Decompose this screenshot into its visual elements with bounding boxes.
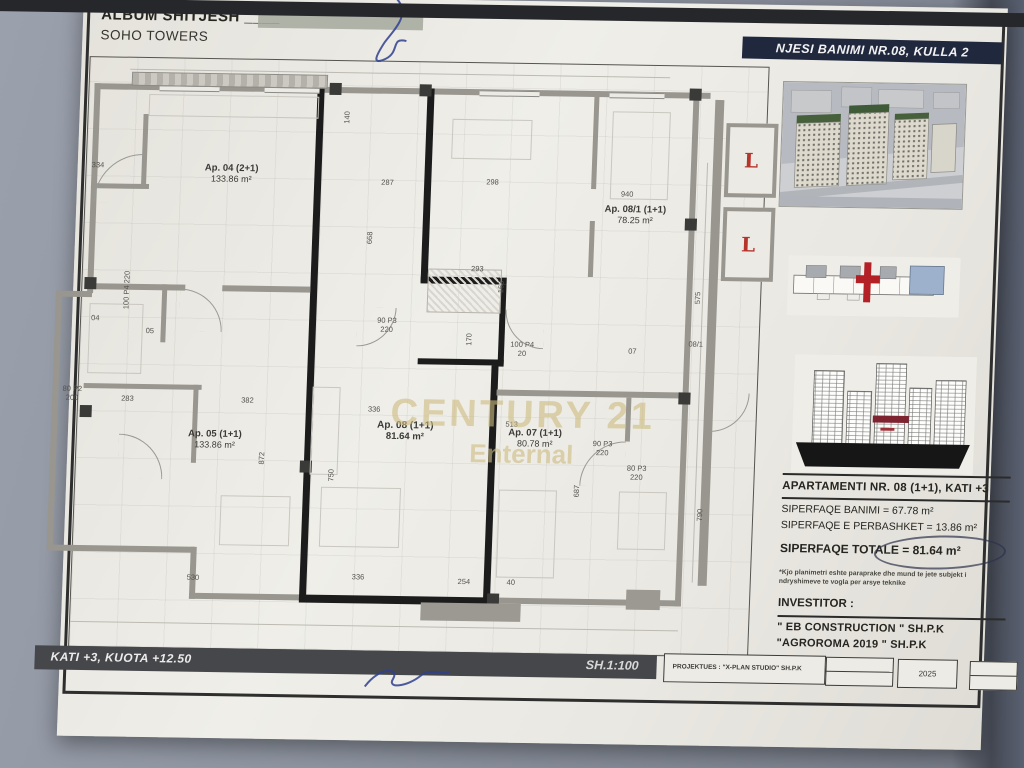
divider [970,675,1016,677]
wall-segment [421,88,435,282]
door-swing [709,393,749,433]
edge-title-box [969,661,1018,691]
wall-segment [87,283,185,291]
dimension-label: 140 [343,111,352,124]
furniture-outline [451,119,532,160]
divider [826,671,892,673]
door-swing [179,289,224,333]
year-box: 2025 [897,659,958,689]
wall-segment [591,91,600,189]
area-line: SIPERFAQE E PERBASHKET = 13.86 m² [781,519,1009,535]
column [79,405,91,417]
apartment-name: Ap. 08/1 (1+1) [604,204,666,216]
balcony-block [626,590,661,611]
elevator-symbol: L [744,148,759,172]
wall-segment [675,93,700,607]
dimension-label: 687 [573,485,582,498]
apartment-area: 133.86 m² [204,173,258,184]
investor-name: " EB CONSTRUCTION " SH.P.K [777,621,1005,637]
dimension-line [70,621,678,632]
dimension-label: 790 [696,509,705,522]
project-name: SOHO TOWERS [100,27,279,45]
apartment-label: Ap. 08/1 (1+1)78.25 m² [604,204,666,226]
watermark-line2: Enternal [386,437,657,472]
wall-segment [222,285,310,292]
dimension-label: 575 [694,292,703,305]
empty-title-box [825,657,894,687]
photo-of-floorplan-page: ALBUM SHITJESH ____ SOHO TOWERS NJESI BA… [0,0,1024,768]
apartment-name: Ap. 05 (1+1) [188,428,242,440]
apartment-name: Ap. 04 (2+1) [205,162,259,174]
dimension-label: 04 [91,314,100,323]
elevation-diagram [791,354,977,475]
furniture-outline [149,94,320,119]
investor-label: INVESTITOR : [777,597,1006,621]
column [84,277,96,289]
dimension-label: 40 [506,579,515,588]
apartment-area: 78.25 m² [604,215,666,226]
wall-segment [588,221,595,277]
furniture-outline [219,495,291,546]
dimension-label: 08/1 [688,341,703,350]
floor-label: KATI +3, KUOTA +12.50 [50,650,191,666]
dimension-label: 293 [471,265,484,274]
apartment-area: 133.86 m² [188,439,242,450]
dimension-label: 287 [381,179,394,188]
furniture-outline [610,111,671,200]
wall-segment [160,284,167,342]
dimension-label: 283 [121,395,134,404]
wall-segment [189,593,303,601]
apartment-info-panel: APARTAMENTI NR. 08 (1+1), KATI +3 SIPERF… [776,471,1010,652]
paper-sheet: ALBUM SHITJESH ____ SOHO TOWERS NJESI BA… [57,0,1008,750]
window [609,92,664,99]
apartment-label: Ap. 05 (1+1)133.86 m² [188,428,242,450]
dimension-label: 100 P4 20 [510,341,534,359]
dimension-label: 750 [327,469,336,482]
window [479,90,539,97]
investor-list: " EB CONSTRUCTION " SH.P.K"AGROROMA 2019… [776,621,1005,653]
watermark: CENTURY 21 Enternal [386,392,659,472]
elevator-symbol: L [741,232,756,256]
apartment-label: Ap. 04 (2+1)133.86 m² [204,162,258,184]
column [329,83,341,95]
dimension-label: 530 [186,574,199,583]
dimension-label: 336 [352,573,365,582]
dimension-label: 100 P4 220 [122,271,132,309]
scale-label: SH.1:100 [586,658,639,673]
elevator-shaft: L [724,123,779,198]
building-render-image [779,81,968,210]
furniture-outline [309,387,340,475]
furniture-outline [617,491,667,550]
dimension-label: 336 [368,406,381,415]
dimension-label: 940 [621,190,634,199]
wall-segment [47,291,62,549]
dimension-label: 170 [465,333,474,346]
column [689,89,701,101]
column [678,392,690,404]
dimension-label: 382 [241,397,254,406]
dimension-label: 80 P2 200 [62,385,82,403]
dimension-label: 254 [457,578,470,587]
wall-segment [84,383,202,390]
dimension-label: 05 [146,327,155,336]
dimension-label: 872 [258,452,267,465]
door-swing [117,434,164,480]
column [685,218,697,230]
dimension-label: 07 [628,348,637,357]
dimension-label: 90 P3 220 [377,317,397,335]
furniture-outline [319,487,401,548]
disclaimer-note: *Kjo planimetri eshte paraprake dhe mund… [779,569,1008,590]
pen-circle-annotation [874,534,1006,571]
floor-plan: CENTURY 21 Enternal L L 3342871402989406… [68,56,770,657]
area-line: SIPERFAQE BANIMI = 67.78 m² [781,503,1009,519]
wall-segment [191,385,199,463]
designer-box: PROJEKTUES : "X-PLAN STUDIO" SH.P.K [663,653,826,685]
wall-segment [56,291,92,298]
dimension-label: 334 [92,161,105,170]
site-plan-diagram [787,255,961,318]
furniture-outline [496,490,557,579]
dimension-label: 163 [497,281,506,294]
total-area-line: SIPERFAQE TOTALE = 81.64 m² [780,541,1008,559]
balcony-block [420,602,521,622]
bathroom-tiles [426,268,502,313]
apartment-title: APARTAMENTI NR. 08 (1+1), KATI +3 [782,477,1011,499]
dimension-label: 668 [366,232,375,245]
pen-scribble-bottom [358,660,454,701]
watermark-line1: CENTURY 21 [387,392,659,439]
elevator-shaft: L [721,207,776,282]
dimension-label: 298 [486,178,499,187]
column [419,84,431,96]
